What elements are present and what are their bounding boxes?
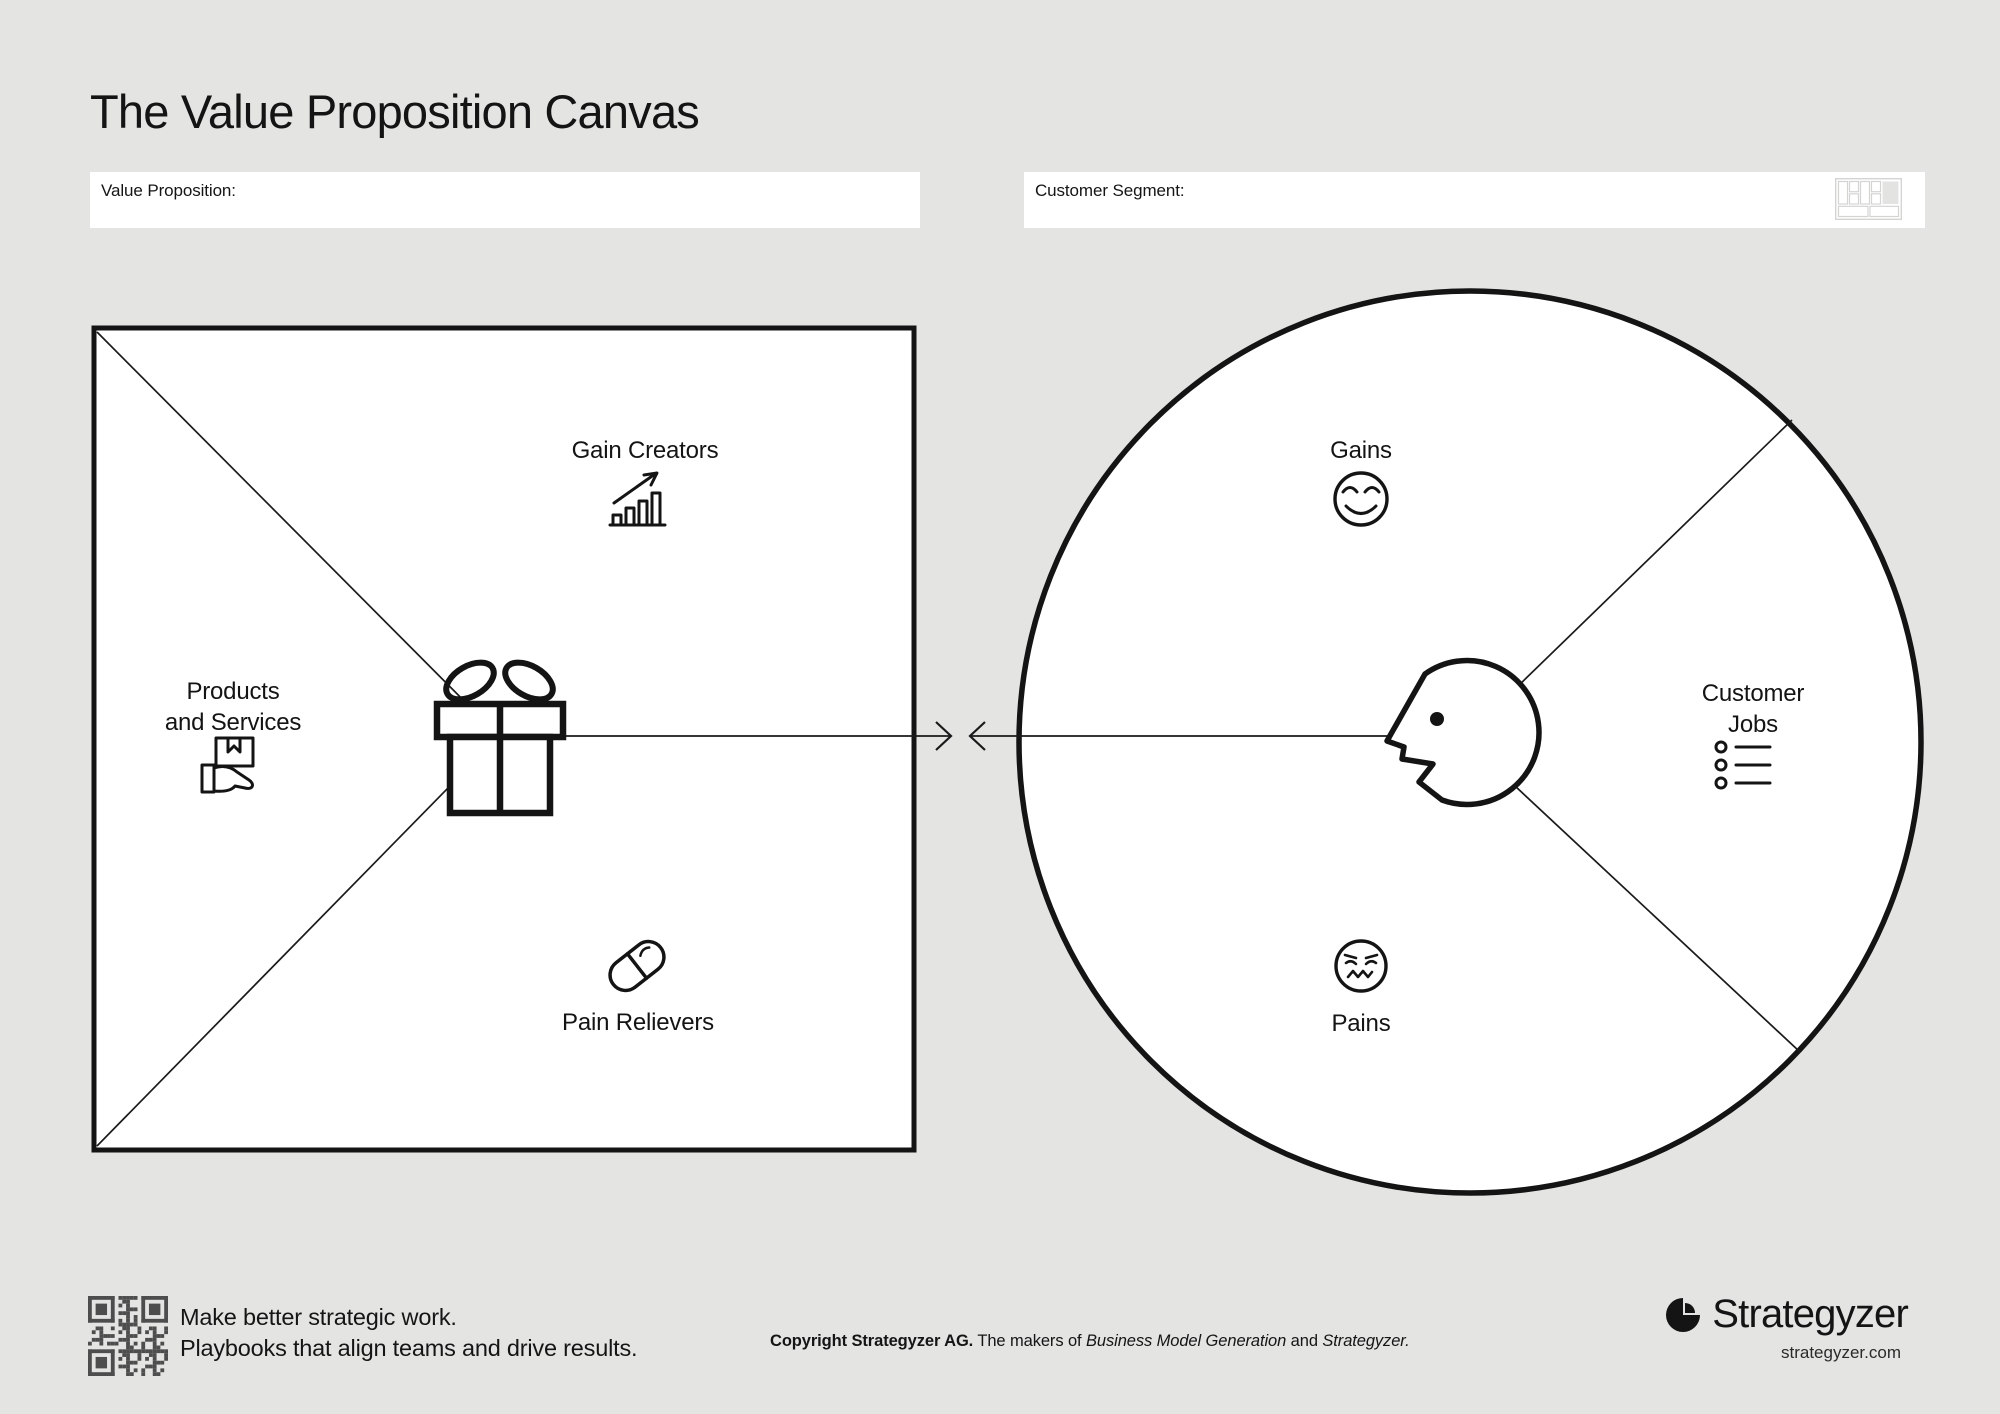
copyright-italic1: Business Model Generation xyxy=(1086,1332,1286,1350)
strategyzer-logo: Strategyzer xyxy=(1665,1292,1908,1337)
pained-face-icon xyxy=(1336,941,1386,991)
copyright-italic2: Strategyzer. xyxy=(1322,1332,1409,1350)
products-services-label: Products and Services xyxy=(133,676,333,738)
pains-label: Pains xyxy=(1261,1008,1461,1039)
customer-jobs-line1: Customer xyxy=(1653,678,1853,709)
strategyzer-logo-text: Strategyzer xyxy=(1712,1292,1908,1337)
products-services-line1: Products xyxy=(133,676,333,707)
copyright-bold: Copyright Strategyzer AG. xyxy=(770,1332,973,1350)
strategyzer-logo-icon xyxy=(1665,1297,1701,1333)
pain-relievers-label: Pain Relievers xyxy=(538,1007,738,1038)
strategyzer-url: strategyzer.com xyxy=(1781,1343,1901,1363)
tagline-line2: Playbooks that align teams and drive res… xyxy=(180,1333,637,1364)
eye-dot xyxy=(1430,712,1444,726)
gain-creators-label: Gain Creators xyxy=(545,435,745,466)
products-services-line2: and Services xyxy=(133,707,333,738)
gains-label: Gains xyxy=(1261,435,1461,466)
copyright-text1: The makers of xyxy=(973,1332,1086,1350)
copyright-text: Copyright Strategyzer AG. The makers of … xyxy=(770,1332,1410,1351)
footer-tagline: Make better strategic work. Playbooks th… xyxy=(180,1302,637,1364)
qr-code xyxy=(88,1296,168,1376)
tagline-line1: Make better strategic work. xyxy=(180,1302,637,1333)
happy-face-icon xyxy=(1335,473,1387,525)
customer-jobs-line2: Jobs xyxy=(1653,709,1853,740)
copyright-text2: and xyxy=(1286,1332,1322,1350)
customer-jobs-label: Customer Jobs xyxy=(1653,678,1853,740)
